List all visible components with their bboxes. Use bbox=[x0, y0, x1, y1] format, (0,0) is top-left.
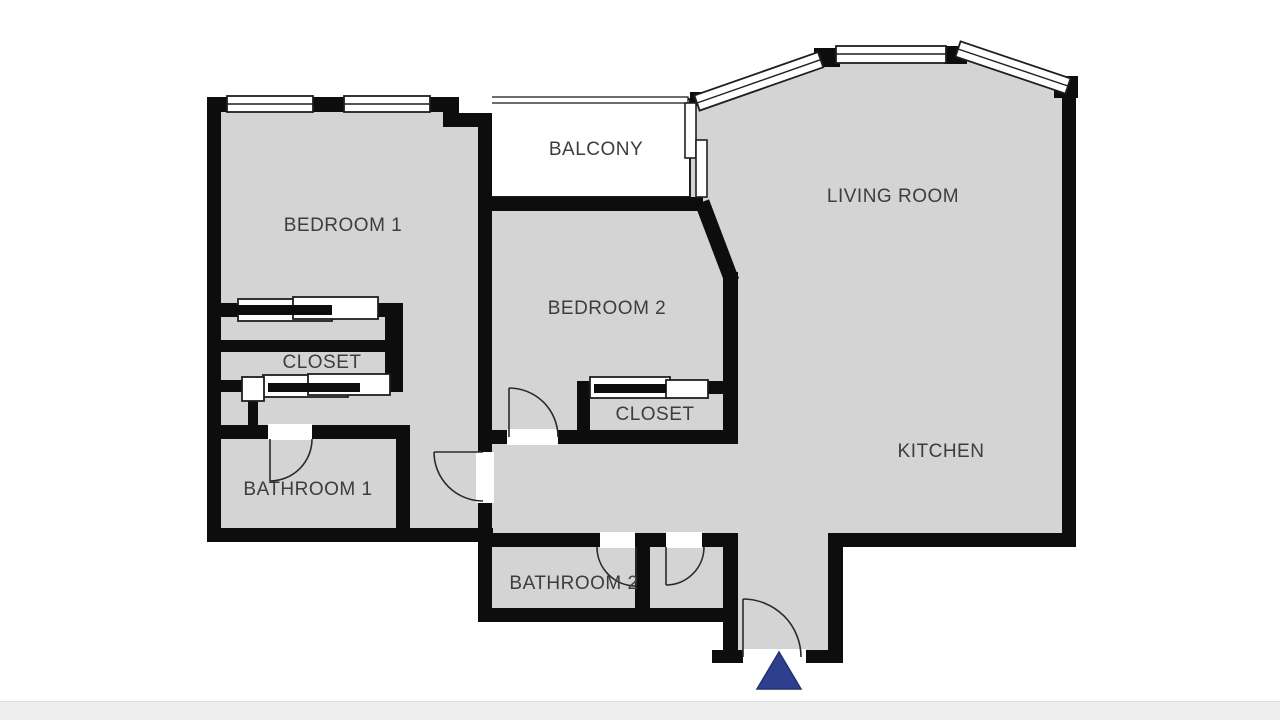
room-label-bathroom-1: BATHROOM 1 bbox=[243, 479, 372, 500]
door-gap bbox=[268, 424, 312, 440]
wall bbox=[390, 380, 403, 392]
wall bbox=[478, 503, 492, 622]
living-kitchen-floor bbox=[690, 54, 1068, 657]
room-label-balcony: BALCONY bbox=[549, 139, 643, 160]
wall bbox=[207, 528, 493, 542]
door-gap bbox=[666, 532, 702, 548]
wall bbox=[828, 533, 1076, 547]
balcony-railing bbox=[490, 97, 688, 103]
room-label-closet-1: CLOSET bbox=[282, 352, 361, 373]
sliding-door-icon bbox=[216, 297, 378, 321]
exterior-notch bbox=[459, 95, 492, 113]
wall bbox=[704, 381, 738, 394]
wall bbox=[378, 303, 403, 317]
door-gap bbox=[507, 429, 558, 445]
center-wing-floor bbox=[487, 200, 738, 615]
wall bbox=[207, 340, 403, 352]
room-label-kitchen: KITCHEN bbox=[898, 441, 985, 462]
wall bbox=[207, 425, 268, 439]
room-label-closet-2: CLOSET bbox=[615, 404, 694, 425]
wall bbox=[484, 197, 703, 211]
door-gap bbox=[476, 452, 494, 503]
wall bbox=[1062, 86, 1076, 547]
wall bbox=[207, 380, 243, 392]
wall bbox=[478, 113, 492, 452]
door-gap bbox=[600, 532, 635, 548]
footer-strip bbox=[0, 701, 1280, 720]
wall bbox=[723, 533, 738, 663]
sliding-door-icon bbox=[263, 374, 390, 397]
wall bbox=[723, 272, 738, 444]
room-label-bedroom-1: BEDROOM 1 bbox=[284, 215, 403, 236]
wall bbox=[478, 608, 738, 622]
sliding-door-icon bbox=[590, 377, 708, 398]
door-jamb-icon bbox=[242, 377, 264, 401]
wall bbox=[712, 650, 743, 663]
room-label-living-room: LIVING ROOM bbox=[827, 186, 959, 207]
floorplan-drawing: BEDROOM 1 BALCONY LIVING ROOM BEDROOM 2 … bbox=[0, 0, 1280, 720]
wall bbox=[312, 425, 410, 439]
wall bbox=[828, 533, 843, 663]
bedroom1-window-icon bbox=[344, 96, 430, 112]
floorplan-page: BEDROOM 1 BALCONY LIVING ROOM BEDROOM 2 … bbox=[0, 0, 1280, 720]
wall bbox=[484, 430, 507, 444]
wall bbox=[207, 97, 221, 542]
room-label-bedroom-2: BEDROOM 2 bbox=[548, 298, 667, 319]
wall bbox=[396, 425, 410, 542]
wall bbox=[806, 650, 843, 663]
room-label-bathroom-2: BATHROOM 2 bbox=[509, 573, 638, 594]
bay-window-center-icon bbox=[836, 46, 946, 63]
bedroom1-window-icon bbox=[227, 96, 313, 112]
wall bbox=[478, 533, 600, 547]
